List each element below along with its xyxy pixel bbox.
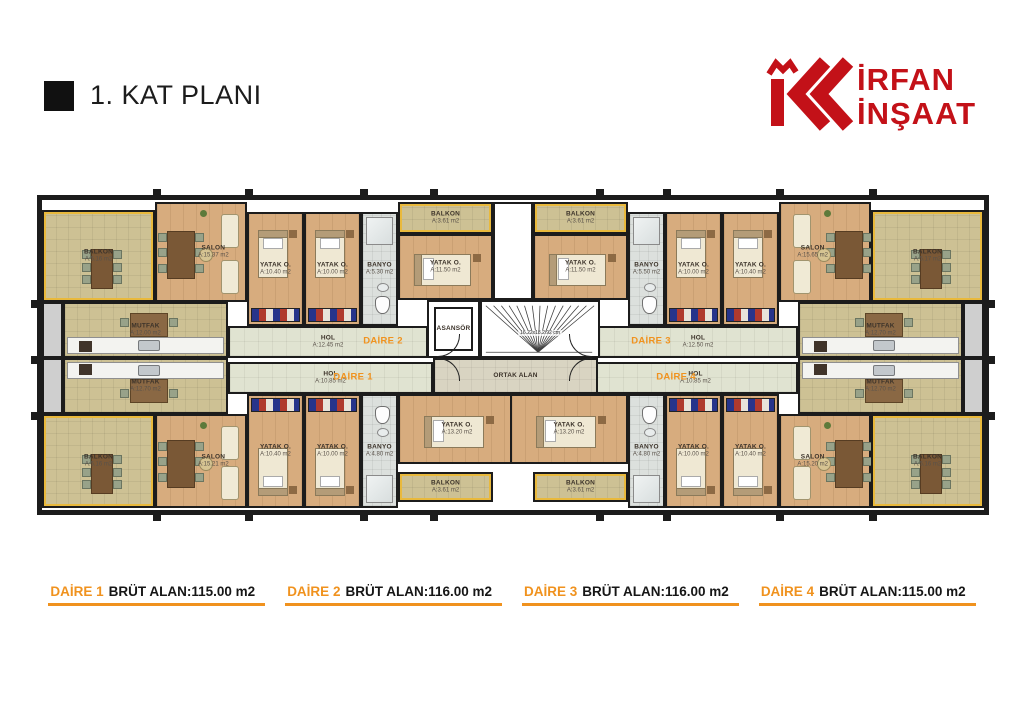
furniture xyxy=(598,416,606,424)
room-name: BANYO xyxy=(366,262,393,270)
furniture xyxy=(200,210,207,217)
furniture xyxy=(911,480,920,489)
furniture xyxy=(113,263,122,272)
legend-daire-label: DAİRE 1 xyxy=(50,584,103,599)
room-area: A:4.80 m2 xyxy=(366,451,393,458)
furniture xyxy=(776,512,784,521)
room-label: BALKONA:3.61 m2 xyxy=(431,211,460,226)
room-name: HOL xyxy=(313,335,344,343)
room-label: SALONA:15.65 m2 xyxy=(797,245,828,260)
daire-tag: DAİRE 3 xyxy=(631,336,671,347)
room-area: A:12.70 m2 xyxy=(865,386,896,393)
furniture xyxy=(764,230,772,238)
furniture xyxy=(195,264,204,273)
room-salon: SALONA:15.20 m2 xyxy=(779,414,871,508)
furniture xyxy=(826,233,835,242)
furniture xyxy=(904,318,913,327)
furniture xyxy=(195,233,204,242)
furniture xyxy=(942,468,951,477)
room-shaft xyxy=(42,358,63,414)
furniture xyxy=(764,486,772,494)
title-square-bullet xyxy=(44,81,74,111)
room-mutfak: MUTFAKA:12.70 m2 xyxy=(798,302,963,358)
room-banyo: BANYOA:4.80 m2 xyxy=(361,394,398,508)
furniture xyxy=(986,300,995,308)
furniture xyxy=(158,457,167,466)
furniture xyxy=(835,231,863,279)
room-label: HOLA:12.50 m2 xyxy=(683,335,714,350)
furniture xyxy=(986,412,995,420)
furniture xyxy=(251,398,300,412)
furniture xyxy=(113,275,122,284)
room-area: A:10.40 m2 xyxy=(260,269,291,276)
legend-daire-label: DAİRE 2 xyxy=(287,584,340,599)
furniture xyxy=(320,476,340,487)
furniture xyxy=(82,275,91,284)
furniture xyxy=(707,230,715,238)
room-label: YATAK O.A:11.50 m2 xyxy=(565,260,596,275)
room-area: A:10.00 m2 xyxy=(317,269,348,276)
furniture xyxy=(82,263,91,272)
furniture xyxy=(549,254,557,286)
furniture xyxy=(308,308,357,322)
furniture xyxy=(776,189,784,198)
room-yatak-o-: YATAK O.A:10.00 m2 xyxy=(665,212,722,326)
furniture xyxy=(826,442,835,451)
room-balkon: BALKONA:3.61 m2 xyxy=(533,472,628,502)
room-label: YATAK O.A:10.40 m2 xyxy=(260,262,291,277)
furniture xyxy=(346,230,354,238)
stair-dimension: 16.22x18.2/92 cm xyxy=(518,330,562,336)
furniture xyxy=(31,412,40,420)
room-label: BALKONA:5.16 m2 xyxy=(84,249,113,264)
furniture xyxy=(315,488,345,496)
furniture xyxy=(375,296,390,314)
room-name: SALON xyxy=(198,454,229,462)
room-label: BALKONA:3.61 m2 xyxy=(566,211,595,226)
room-name: SALON xyxy=(797,454,828,462)
room-salon: SALONA:15.21 m2 xyxy=(155,414,247,508)
room-label: YATAK O.A:10.00 m2 xyxy=(317,262,348,277)
furniture xyxy=(486,416,494,424)
room-yatak-o-: YATAK O.A:10.00 m2 xyxy=(304,212,361,326)
furniture xyxy=(681,238,701,249)
room-area: A:10.00 m2 xyxy=(678,451,709,458)
room-name: YATAK O. xyxy=(260,444,291,452)
ik-logo-mark xyxy=(769,62,848,126)
room-name: BALKON xyxy=(84,249,113,257)
room-name: BALKON xyxy=(913,454,942,462)
room-mutfak: MUTFAKA:12.70 m2 xyxy=(798,358,963,414)
furniture xyxy=(826,264,835,273)
room-label: YATAK O.A:10.00 m2 xyxy=(678,262,709,277)
furniture xyxy=(346,486,354,494)
room-yatak-o-: YATAK O.A:10.40 m2 xyxy=(247,212,304,326)
room-name: SALON xyxy=(797,245,828,253)
legend-area-text: BRÜT ALAN:115.00 m2 xyxy=(819,584,966,599)
legend-daire-label: DAİRE 4 xyxy=(761,584,814,599)
furniture xyxy=(375,406,390,424)
irfan-insaat-logo: İRFAN İNŞAAT xyxy=(762,54,994,134)
room-label: SALONA:15.37 m2 xyxy=(198,245,229,260)
room-name: BANYO xyxy=(633,262,660,270)
room-label: MUTFAKA:12.70 m2 xyxy=(865,323,896,338)
room-area: A:12.00 m2 xyxy=(130,330,161,337)
room-area: A:11.50 m2 xyxy=(430,267,461,274)
furniture xyxy=(596,189,604,198)
furniture xyxy=(835,440,863,488)
furniture xyxy=(911,263,920,272)
furniture xyxy=(733,488,763,496)
room-name: MUTFAK xyxy=(130,323,161,331)
logo-line1: İRFAN xyxy=(857,62,955,97)
room-area: A:5.16 m2 xyxy=(84,461,113,468)
furniture xyxy=(360,189,368,198)
room-yatak-o-: YATAK O.A:13.20 m2 xyxy=(398,394,516,464)
room-label: YATAK O.A:10.40 m2 xyxy=(735,444,766,459)
room-name: YATAK O. xyxy=(553,422,584,430)
furniture xyxy=(113,455,122,464)
furniture xyxy=(642,406,657,424)
room-label: BANYOA:5.30 m2 xyxy=(366,262,393,277)
room-name: BALKON xyxy=(566,211,595,219)
furniture xyxy=(793,466,811,500)
furniture xyxy=(726,398,775,412)
daire-tag: DAİRE 4 xyxy=(656,372,696,383)
room-label: YATAK O.A:10.40 m2 xyxy=(260,444,291,459)
furniture xyxy=(289,486,297,494)
logo-line2: İNŞAAT xyxy=(857,96,976,131)
furniture xyxy=(167,440,195,488)
room-yatak-o-: YATAK O.A:13.20 m2 xyxy=(510,394,628,464)
furniture xyxy=(366,217,393,245)
room-label: MUTFAKA:12.70 m2 xyxy=(865,379,896,394)
room-yatak-o-: YATAK O.A:11.50 m2 xyxy=(398,234,493,300)
room-hol: HOLA:12.50 m2 xyxy=(598,326,798,358)
furniture xyxy=(869,512,877,521)
room-area: A:4.80 m2 xyxy=(633,451,660,458)
room-area: A:5.17 m2 xyxy=(913,256,942,263)
furniture xyxy=(315,230,345,238)
furniture xyxy=(82,480,91,489)
furniture xyxy=(414,254,422,286)
furniture xyxy=(158,233,167,242)
room-balkon: BALKONA:5.17 m2 xyxy=(871,210,984,302)
furniture xyxy=(738,238,758,249)
floor-plan: BALKONA:5.16 m2SALONA:15.37 m2YATAK O.A:… xyxy=(38,196,988,514)
room-name: BALKON xyxy=(431,480,460,488)
furniture xyxy=(263,238,283,249)
furniture xyxy=(377,428,389,437)
room-label: YATAK O.A:13.20 m2 xyxy=(553,422,584,437)
room-area: A:13.20 m2 xyxy=(553,429,584,436)
room-label: BANYOA:5.50 m2 xyxy=(633,262,660,277)
furniture xyxy=(200,422,207,429)
room-void xyxy=(493,202,533,300)
furniture xyxy=(79,341,92,352)
room-balkon: BALKONA:5.16 m2 xyxy=(42,210,155,302)
furniture xyxy=(644,428,656,437)
furniture xyxy=(942,275,951,284)
furniture xyxy=(31,300,40,308)
furniture xyxy=(707,486,715,494)
furniture xyxy=(79,364,92,375)
furniture xyxy=(681,476,701,487)
room-area: A:15.21 m2 xyxy=(198,461,229,468)
furniture xyxy=(158,473,167,482)
daire-tag: DAİRE 2 xyxy=(363,336,403,347)
furniture xyxy=(289,230,297,238)
room-banyo: BANYOA:5.50 m2 xyxy=(628,212,665,326)
furniture xyxy=(424,416,432,448)
furniture xyxy=(644,283,656,292)
room-name: YATAK O. xyxy=(565,260,596,268)
furniture xyxy=(676,230,706,238)
furniture xyxy=(158,442,167,451)
furniture xyxy=(120,318,129,327)
furniture xyxy=(245,189,253,198)
furniture xyxy=(596,512,604,521)
room-label: YATAK O.A:10.40 m2 xyxy=(735,262,766,277)
furniture xyxy=(138,365,160,376)
furniture xyxy=(473,254,481,262)
furniture xyxy=(221,214,239,248)
furniture xyxy=(726,308,775,322)
furniture xyxy=(153,512,161,521)
furniture xyxy=(120,389,129,398)
room-shaft xyxy=(963,302,984,358)
room-label: BALKONA:3.61 m2 xyxy=(566,480,595,495)
room-area: A:10.00 m2 xyxy=(678,269,709,276)
furniture xyxy=(824,210,831,217)
furniture xyxy=(113,480,122,489)
room-area: A:5.16 m2 xyxy=(913,461,942,468)
room-name: YATAK O. xyxy=(430,260,461,268)
furniture xyxy=(793,214,811,248)
room-name: HOL xyxy=(683,335,714,343)
furniture xyxy=(642,296,657,314)
room-balkon: BALKONA:3.61 m2 xyxy=(533,202,628,234)
room-balkon: BALKONA:3.61 m2 xyxy=(398,202,493,234)
room-mutfak: MUTFAKA:12.70 m2 xyxy=(63,358,228,414)
furniture xyxy=(942,263,951,272)
furniture xyxy=(221,466,239,500)
room-name: MUTFAK xyxy=(865,323,896,331)
furniture xyxy=(251,308,300,322)
legend-area-text: BRÜT ALAN:116.00 m2 xyxy=(582,584,729,599)
page-title: 1. KAT PLANI xyxy=(44,80,262,111)
furniture xyxy=(814,364,827,375)
furniture xyxy=(263,476,283,487)
legend-item: DAİRE 4BRÜT ALAN:115.00 m2 xyxy=(759,584,976,606)
room-banyo: BANYOA:5.30 m2 xyxy=(361,212,398,326)
room-name: YATAK O. xyxy=(317,444,348,452)
room-area: A:10.40 m2 xyxy=(735,269,766,276)
room-name: BALKON xyxy=(84,454,113,462)
furniture xyxy=(536,416,544,448)
room-label: BALKONA:5.16 m2 xyxy=(84,454,113,469)
furniture xyxy=(31,356,40,364)
room-label: YATAK O.A:11.50 m2 xyxy=(430,260,461,275)
room-area: A:10.40 m2 xyxy=(260,451,291,458)
room-area: A:12.50 m2 xyxy=(683,342,714,349)
legend-daire-label: DAİRE 3 xyxy=(524,584,577,599)
room-balkon: BALKONA:5.16 m2 xyxy=(871,414,984,508)
room-label: MUTFAKA:12.70 m2 xyxy=(130,379,161,394)
furniture xyxy=(82,468,91,477)
furniture xyxy=(258,488,288,496)
furniture xyxy=(733,230,763,238)
furniture xyxy=(430,189,438,198)
room-area: A:3.61 m2 xyxy=(566,218,595,225)
room-hol: HOLA:10.85 m2 xyxy=(228,362,433,394)
furniture xyxy=(814,341,827,352)
furniture xyxy=(826,473,835,482)
room-label: BALKONA:5.17 m2 xyxy=(913,249,942,264)
room-label: SALONA:15.20 m2 xyxy=(797,454,828,469)
room-name: YATAK O. xyxy=(678,262,709,270)
daire-tag: DAİRE 1 xyxy=(333,372,373,383)
furniture xyxy=(169,318,178,327)
room-area: A:15.37 m2 xyxy=(198,252,229,259)
room-yatak-o-: YATAK O.A:10.40 m2 xyxy=(722,212,779,326)
room-label: HOLA:12.45 m2 xyxy=(313,335,344,350)
furniture xyxy=(366,475,393,503)
room-label: BALKONA:3.61 m2 xyxy=(431,480,460,495)
room-label: MUTFAKA:12.00 m2 xyxy=(130,323,161,338)
legend-area-text: BRÜT ALAN:115.00 m2 xyxy=(109,584,256,599)
furniture xyxy=(377,283,389,292)
furniture xyxy=(360,512,368,521)
room-name: BANYO xyxy=(633,444,660,452)
furniture xyxy=(245,512,253,521)
room-salon: SALONA:15.37 m2 xyxy=(155,202,247,302)
legend: DAİRE 1BRÜT ALAN:115.00 m2DAİRE 2BRÜT AL… xyxy=(0,584,1024,606)
furniture xyxy=(430,512,438,521)
furniture xyxy=(608,254,616,262)
room-name: MUTFAK xyxy=(865,379,896,387)
furniture xyxy=(911,275,920,284)
furniture xyxy=(855,318,864,327)
room-yatak-o-: YATAK O.A:10.40 m2 xyxy=(722,394,779,508)
furniture xyxy=(169,389,178,398)
room-name: BALKON xyxy=(431,211,460,219)
furniture xyxy=(669,308,718,322)
floor-plan-slide: { "title": "1. KAT PLANI", "logo": { "li… xyxy=(0,0,1024,724)
room-yatak-o-: YATAK O.A:10.40 m2 xyxy=(247,394,304,508)
furniture xyxy=(855,389,864,398)
furniture xyxy=(158,248,167,257)
furniture xyxy=(158,264,167,273)
room-label: BANYOA:4.80 m2 xyxy=(366,444,393,459)
room-label: ASANSÖR xyxy=(437,325,471,333)
room-name: YATAK O. xyxy=(260,262,291,270)
room-label: SALONA:15.21 m2 xyxy=(198,454,229,469)
room-banyo: BANYOA:4.80 m2 xyxy=(628,394,665,508)
room-shaft xyxy=(963,358,984,414)
furniture xyxy=(911,468,920,477)
furniture xyxy=(873,340,895,351)
room-label: BANYOA:4.80 m2 xyxy=(633,444,660,459)
furniture xyxy=(676,488,706,496)
furniture xyxy=(986,356,995,364)
furniture xyxy=(663,512,671,521)
room-label: YATAK O.A:13.20 m2 xyxy=(441,422,472,437)
room-name: YATAK O. xyxy=(317,262,348,270)
room-name: ORTAK ALAN xyxy=(493,372,537,380)
room-area: A:15.65 m2 xyxy=(797,252,828,259)
room-name: MUTFAK xyxy=(130,379,161,387)
furniture xyxy=(138,340,160,351)
furniture xyxy=(633,475,660,503)
furniture xyxy=(308,398,357,412)
room-area: A:3.61 m2 xyxy=(431,218,460,225)
room-name: ASANSÖR xyxy=(437,325,471,333)
room-label: YATAK O.A:10.00 m2 xyxy=(678,444,709,459)
furniture xyxy=(873,365,895,376)
room-area: A:10.00 m2 xyxy=(317,451,348,458)
furniture xyxy=(167,231,195,279)
room-label: ORTAK ALAN xyxy=(493,372,537,380)
room-balkon: BALKONA:3.61 m2 xyxy=(398,472,493,502)
room-area: A:12.70 m2 xyxy=(130,386,161,393)
room-area: A:5.50 m2 xyxy=(633,269,660,276)
room-balkon: BALKONA:5.16 m2 xyxy=(42,414,155,508)
legend-area-text: BRÜT ALAN:116.00 m2 xyxy=(345,584,492,599)
room-yatak-o-: YATAK O.A:10.00 m2 xyxy=(304,394,361,508)
furniture xyxy=(904,389,913,398)
furniture xyxy=(320,238,340,249)
furniture xyxy=(663,189,671,198)
legend-item: DAİRE 3BRÜT ALAN:116.00 m2 xyxy=(522,584,739,606)
room-name: BALKON xyxy=(566,480,595,488)
room-area: A:12.45 m2 xyxy=(313,342,344,349)
room-name: YATAK O. xyxy=(735,262,766,270)
furniture xyxy=(195,473,204,482)
room-area: A:15.20 m2 xyxy=(797,461,828,468)
room-area: A:5.16 m2 xyxy=(84,256,113,263)
room-area: A:3.61 m2 xyxy=(431,487,460,494)
furniture xyxy=(113,468,122,477)
room-name: YATAK O. xyxy=(735,444,766,452)
room-yatak-o-: YATAK O.A:10.00 m2 xyxy=(665,394,722,508)
furniture xyxy=(195,442,204,451)
room-name: YATAK O. xyxy=(441,422,472,430)
room-name: BALKON xyxy=(913,249,942,257)
room-area: A:13.20 m2 xyxy=(441,429,472,436)
room-name: BANYO xyxy=(366,444,393,452)
room-name: YATAK O. xyxy=(678,444,709,452)
legend-item: DAİRE 2BRÜT ALAN:116.00 m2 xyxy=(285,584,502,606)
furniture xyxy=(869,189,877,198)
furniture xyxy=(793,260,811,294)
room-area: A:12.70 m2 xyxy=(865,330,896,337)
room-area: A:11.50 m2 xyxy=(565,267,596,274)
furniture xyxy=(153,189,161,198)
room-area: A:5.30 m2 xyxy=(366,269,393,276)
room-mutfak: MUTFAKA:12.00 m2 xyxy=(63,302,228,358)
furniture xyxy=(824,422,831,429)
room-yatak-o-: YATAK O.A:11.50 m2 xyxy=(533,234,628,300)
legend-item: DAİRE 1BRÜT ALAN:115.00 m2 xyxy=(48,584,265,606)
page-title-text: 1. KAT PLANI xyxy=(90,80,262,111)
room-area: A:10.40 m2 xyxy=(735,451,766,458)
furniture xyxy=(942,455,951,464)
room-salon: SALONA:15.65 m2 xyxy=(779,202,871,302)
room-shaft xyxy=(42,302,63,358)
room-area: A:3.61 m2 xyxy=(566,487,595,494)
furniture xyxy=(113,250,122,259)
